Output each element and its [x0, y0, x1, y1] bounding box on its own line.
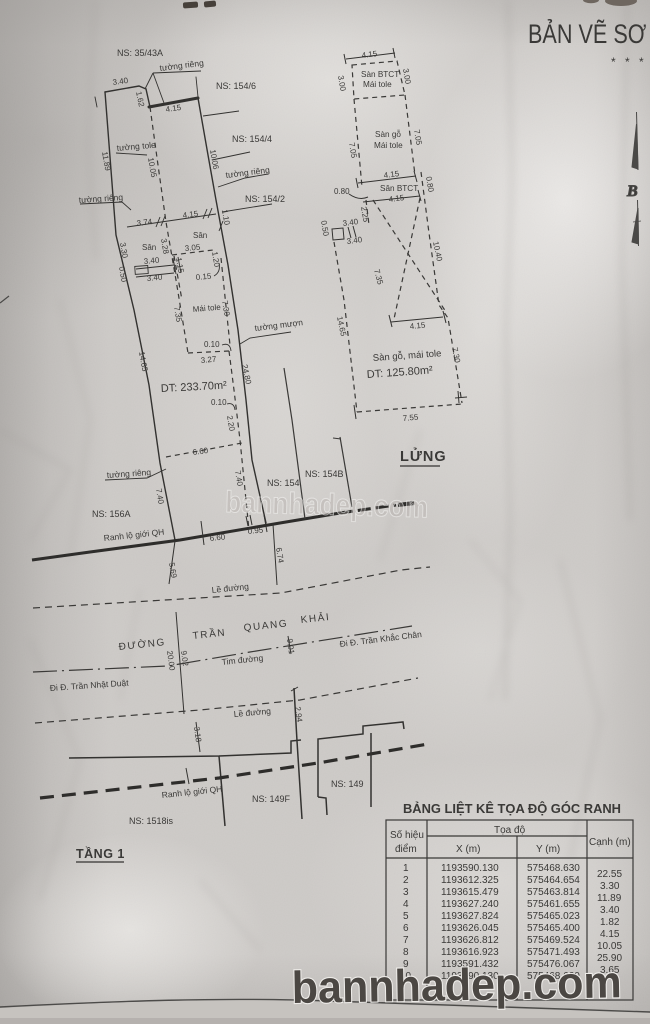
svg-text:Cạnh (m): Cạnh (m) — [589, 837, 631, 848]
svg-text:NS: 154/4: NS: 154/4 — [232, 134, 272, 144]
svg-text:LỬNG: LỬNG — [400, 447, 447, 465]
svg-text:3.30: 3.30 — [600, 881, 620, 892]
svg-text:4.15: 4.15 — [600, 929, 620, 940]
svg-text:575461.655: 575461.655 — [527, 899, 580, 910]
svg-text:3.05: 3.05 — [184, 243, 201, 253]
svg-text:NS: 149: NS: 149 — [331, 779, 364, 789]
svg-text:0.80: 0.80 — [334, 187, 350, 196]
svg-text:Sàn BTCT: Sàn BTCT — [361, 70, 399, 79]
svg-text:Mái tole: Mái tole — [374, 141, 403, 150]
svg-text:3.40: 3.40 — [146, 273, 163, 283]
svg-text:* * * *: * * * * — [611, 55, 650, 69]
svg-text:BẢNG LIỆT KÊ TỌA ĐỘ GÓC RANH: BẢNG LIỆT KÊ TỌA ĐỘ GÓC RANH — [403, 801, 621, 816]
svg-text:3: 3 — [403, 887, 409, 898]
svg-text:Số hiệu: Số hiệu — [390, 829, 424, 841]
svg-text:1193626.812: 1193626.812 — [441, 935, 499, 946]
svg-text:1193616.923: 1193616.923 — [441, 947, 499, 958]
svg-text:3.27: 3.27 — [200, 355, 217, 365]
svg-text:6.60: 6.60 — [209, 532, 226, 543]
svg-text:10.05: 10.05 — [597, 941, 622, 952]
svg-text:1193627.824: 1193627.824 — [441, 911, 499, 922]
svg-text:7.55: 7.55 — [402, 413, 419, 423]
svg-text:0.95: 0.95 — [247, 525, 264, 536]
svg-text:X (m): X (m) — [456, 844, 480, 855]
svg-text:1193615.479: 1193615.479 — [441, 887, 499, 898]
svg-text:575463.814: 575463.814 — [527, 887, 580, 898]
svg-text:điểm: điểm — [395, 843, 417, 855]
svg-text:Y (m): Y (m) — [536, 844, 560, 855]
svg-text:7: 7 — [403, 935, 409, 946]
svg-text:NS: 154/6: NS: 154/6 — [216, 81, 256, 91]
svg-text:1193627.240: 1193627.240 — [441, 899, 499, 910]
svg-text:Sân BTCT: Sân BTCT — [380, 184, 418, 193]
svg-text:NS: 35/43A: NS: 35/43A — [117, 48, 163, 58]
svg-text:4: 4 — [403, 899, 409, 910]
svg-text:11.89: 11.89 — [597, 893, 622, 904]
svg-text:3.40: 3.40 — [143, 256, 160, 266]
svg-text:22.55: 22.55 — [597, 869, 622, 880]
svg-text:NS: 154B: NS: 154B — [305, 469, 344, 479]
svg-text:1193590.130: 1193590.130 — [441, 863, 499, 874]
svg-text:NS: 156A: NS: 156A — [92, 509, 131, 519]
svg-text:0.10: 0.10 — [204, 340, 220, 349]
svg-text:1: 1 — [403, 863, 409, 874]
svg-text:NS: 154/2: NS: 154/2 — [245, 194, 285, 204]
svg-text:1193626.045: 1193626.045 — [441, 923, 499, 934]
svg-text:BẢN VẼ SƠ Đ: BẢN VẼ SƠ Đ — [528, 19, 650, 49]
svg-text:8: 8 — [403, 947, 409, 958]
svg-text:NS: 1518is: NS: 1518is — [129, 816, 174, 826]
svg-text:5: 5 — [403, 911, 409, 922]
svg-text:0.15: 0.15 — [195, 272, 212, 282]
svg-text:3.40: 3.40 — [600, 905, 620, 916]
svg-text:Tọa độ: Tọa độ — [494, 825, 526, 836]
svg-text:B: B — [626, 183, 638, 200]
svg-text:bannhadep.com: bannhadep.com — [225, 486, 429, 524]
svg-text:575464.654: 575464.654 — [527, 875, 580, 886]
svg-text:0.10: 0.10 — [211, 398, 227, 407]
svg-text:bannhadep.com: bannhadep.com — [291, 956, 622, 1013]
svg-text:2: 2 — [403, 875, 409, 886]
svg-text:Mái tole: Mái tole — [363, 80, 392, 89]
svg-text:6: 6 — [403, 923, 409, 934]
svg-text:1.82: 1.82 — [600, 917, 620, 928]
svg-text:575465.400: 575465.400 — [527, 923, 580, 934]
svg-text:4.15: 4.15 — [409, 321, 426, 331]
svg-text:Sân: Sân — [142, 243, 156, 252]
svg-text:575465.023: 575465.023 — [527, 911, 580, 922]
svg-text:NS: 149F: NS: 149F — [252, 794, 291, 804]
svg-text:1193612.325: 1193612.325 — [441, 875, 499, 886]
svg-text:TẦNG 1: TẦNG 1 — [76, 846, 125, 861]
svg-text:Sân: Sân — [193, 231, 207, 240]
svg-text:575469.524: 575469.524 — [527, 935, 580, 946]
svg-text:575468.630: 575468.630 — [527, 863, 580, 874]
svg-text:Sàn gỗ: Sàn gỗ — [375, 129, 401, 139]
